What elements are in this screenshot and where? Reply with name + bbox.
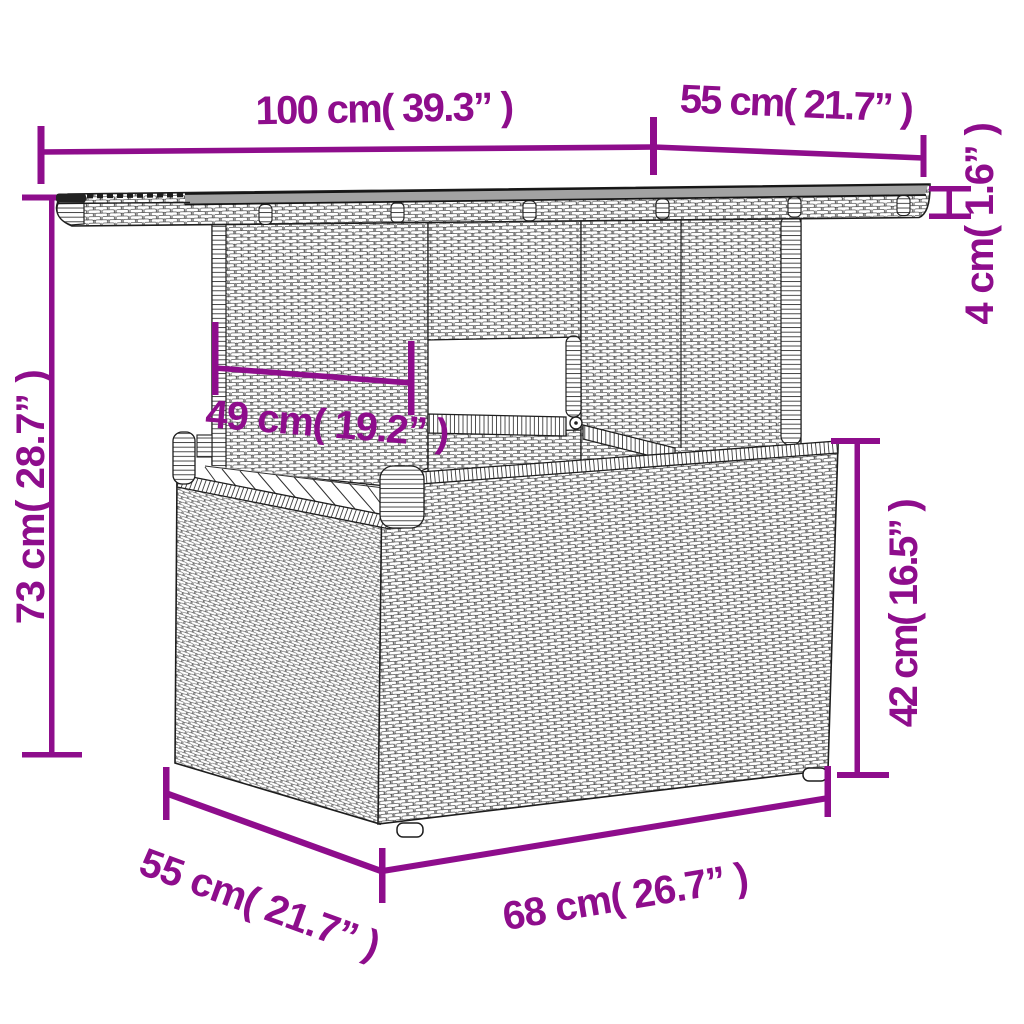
svg-text:4 cm( 1.6” ): 4 cm( 1.6” ) bbox=[958, 123, 1002, 324]
svg-text:42 cm( 16.5” ): 42 cm( 16.5” ) bbox=[882, 500, 926, 728]
svg-text:100 cm( 39.3” ): 100 cm( 39.3” ) bbox=[255, 85, 513, 133]
svg-text:73 cm( 28.7” ): 73 cm( 28.7” ) bbox=[9, 370, 53, 625]
